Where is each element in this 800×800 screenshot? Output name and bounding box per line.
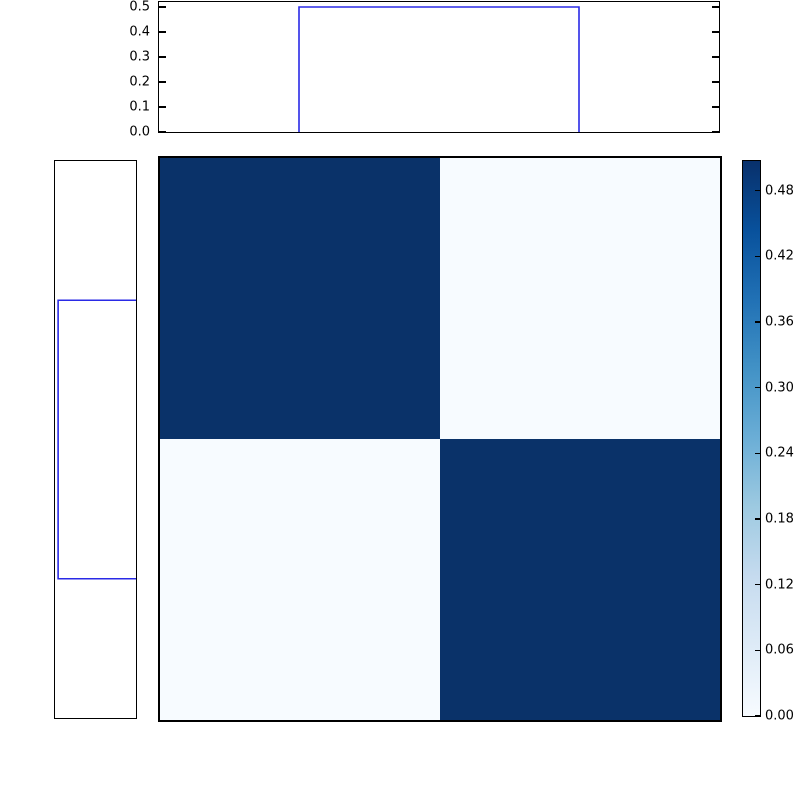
top-axes-y-tick	[159, 56, 166, 57]
top-axes-y-tick	[159, 6, 166, 7]
colorbar-tick-label: 0.12	[765, 578, 794, 591]
colorbar-gradient	[742, 160, 761, 717]
colorbar-tick-label: 0.30	[765, 381, 794, 394]
colorbar-tick	[755, 453, 760, 454]
colorbar-tick	[755, 715, 760, 716]
top-axes-y-tick-label: 0.0	[129, 126, 150, 139]
colorbar-tick	[755, 190, 760, 191]
top-axes-y-tick	[159, 106, 166, 107]
colorbar-tick	[755, 650, 760, 651]
colorbar-tick	[755, 321, 760, 322]
top-axes-y-tick-label: 0.2	[129, 76, 150, 89]
top-axes-y-tick	[712, 6, 719, 7]
heatmap-cell-r1c0	[160, 439, 440, 720]
top-axes-y-tick	[159, 31, 166, 32]
colorbar-tick	[755, 518, 760, 519]
top-axes-y-tick-label: 0.3	[129, 51, 150, 64]
top-axes-y-tick	[712, 131, 719, 132]
colorbar: 0.480.420.360.300.240.180.120.060.00	[742, 160, 800, 717]
joint-distribution-figure: 0.00.10.20.30.40.5 0.480.420.360.300.240…	[0, 0, 800, 800]
colorbar-tick-label: 0.48	[765, 184, 794, 197]
top-axes-y-tick	[159, 81, 166, 82]
colorbar-tick-label: 0.24	[765, 447, 794, 460]
top-axes-y-tick-label: 0.4	[129, 26, 150, 39]
colorbar-tick	[755, 584, 760, 585]
heatmap-cell-r0c1	[440, 158, 720, 439]
top-axes-y-tick-label: 0.1	[129, 101, 150, 114]
colorbar-tick-label: 0.00	[765, 710, 794, 723]
top-marginal-step-line	[159, 2, 719, 132]
left-marginal-step-line	[55, 161, 136, 718]
colorbar-tick-label: 0.36	[765, 315, 794, 328]
top-axes-y-tick	[712, 81, 719, 82]
colorbar-tick-label: 0.42	[765, 250, 794, 263]
top-axes-y-tick	[712, 56, 719, 57]
colorbar-tick-label: 0.06	[765, 644, 794, 657]
top-axes-y-tick-label: 0.5	[129, 1, 150, 14]
colorbar-tick-label: 0.18	[765, 512, 794, 525]
colorbar-tick	[755, 387, 760, 388]
heatmap-cell-r1c1	[440, 439, 720, 720]
top-marginal-axes: 0.00.10.20.30.40.5	[158, 1, 720, 133]
top-axes-y-tick	[159, 131, 166, 132]
left-marginal-axes	[54, 160, 137, 719]
top-axes-y-tick	[712, 106, 719, 107]
colorbar-tick	[755, 256, 760, 257]
heatmap-cell-r0c0	[160, 158, 440, 439]
top-axes-y-tick	[712, 31, 719, 32]
joint-heatmap	[158, 156, 722, 722]
